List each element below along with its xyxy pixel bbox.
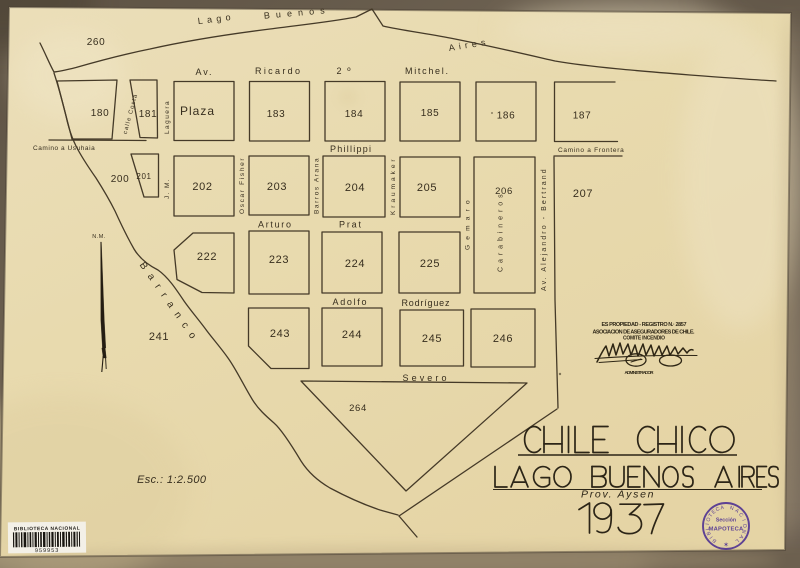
svg-text:Esc.: 1:2.500: Esc.: 1:2.500	[137, 474, 207, 486]
svg-text:186: 186	[497, 111, 516, 122]
svg-text:181: 181	[139, 109, 158, 120]
svg-text:260: 260	[87, 37, 106, 48]
svg-text:Severo: Severo	[403, 373, 448, 383]
svg-text:✶: ✶	[723, 541, 729, 549]
svg-text:Sección: Sección	[716, 518, 736, 524]
svg-text:201: 201	[136, 172, 151, 181]
svg-text:205: 205	[417, 182, 437, 194]
svg-text:Camino a Frontera: Camino a Frontera	[558, 147, 624, 154]
svg-text:187: 187	[573, 111, 592, 122]
svg-text:Oscar Fisher: Oscar Fisher	[239, 158, 246, 214]
svg-text:Mitchel.: Mitchel.	[405, 66, 449, 76]
svg-text:Phillippi: Phillippi	[330, 144, 372, 154]
svg-text:204: 204	[345, 182, 365, 194]
svg-text:207: 207	[573, 188, 593, 200]
svg-text:183: 183	[267, 109, 286, 120]
svg-text:Prat: Prat	[339, 220, 362, 230]
svg-text:184: 184	[345, 109, 364, 120]
svg-text:246: 246	[493, 333, 513, 345]
svg-text:BIBLIOTECA NACIONAL: BIBLIOTECA NACIONAL	[14, 526, 80, 533]
svg-text:223: 223	[269, 254, 289, 266]
svg-text:244: 244	[342, 329, 362, 341]
svg-text:Arturo: Arturo	[258, 220, 292, 230]
svg-text:203: 203	[267, 181, 287, 193]
svg-text:Prov. Aysen: Prov. Aysen	[581, 489, 655, 501]
svg-text:185: 185	[421, 108, 440, 119]
svg-text:ADMINISTRADOR: ADMINISTRADOR	[625, 370, 655, 375]
svg-text:Laguera: Laguera	[164, 101, 171, 134]
svg-text:202: 202	[192, 181, 212, 193]
svg-text:200: 200	[111, 174, 130, 185]
svg-text:Rodríguez: Rodríguez	[402, 298, 451, 308]
svg-text:ES PROPIEDAD - REGISTRO N.· 28: ES PROPIEDAD - REGISTRO N.· 2857	[602, 322, 687, 328]
svg-text:245: 245	[422, 333, 442, 345]
svg-text:243: 243	[270, 328, 290, 340]
svg-text:N.M.: N.M.	[92, 234, 106, 240]
svg-text:J. M.: J. M.	[164, 179, 171, 199]
svg-text:222: 222	[197, 251, 217, 263]
svg-text:224: 224	[345, 258, 365, 270]
svg-text:Barros Arana: Barros Arana	[314, 158, 321, 214]
svg-text:Ricardo: Ricardo	[255, 66, 301, 76]
svg-text:COMITE INCENDIO: COMITE INCENDIO	[623, 336, 665, 342]
svg-text:Plaza: Plaza	[180, 104, 216, 118]
svg-text:Av.: Av.	[196, 67, 213, 77]
svg-text:180: 180	[91, 108, 110, 119]
svg-text:264: 264	[349, 403, 367, 414]
svg-text:Carabineros: Carabineros	[498, 194, 505, 272]
svg-text:Kraumaker: Kraumaker	[390, 159, 397, 215]
svg-text:241: 241	[149, 331, 169, 343]
svg-text:Adolfo: Adolfo	[333, 297, 368, 307]
svg-text:959953: 959953	[35, 548, 59, 554]
svg-text:225: 225	[420, 258, 440, 270]
svg-text:MAPOTECA: MAPOTECA	[709, 527, 744, 533]
svg-text:Camino a Usuhaia: Camino a Usuhaia	[33, 145, 95, 152]
